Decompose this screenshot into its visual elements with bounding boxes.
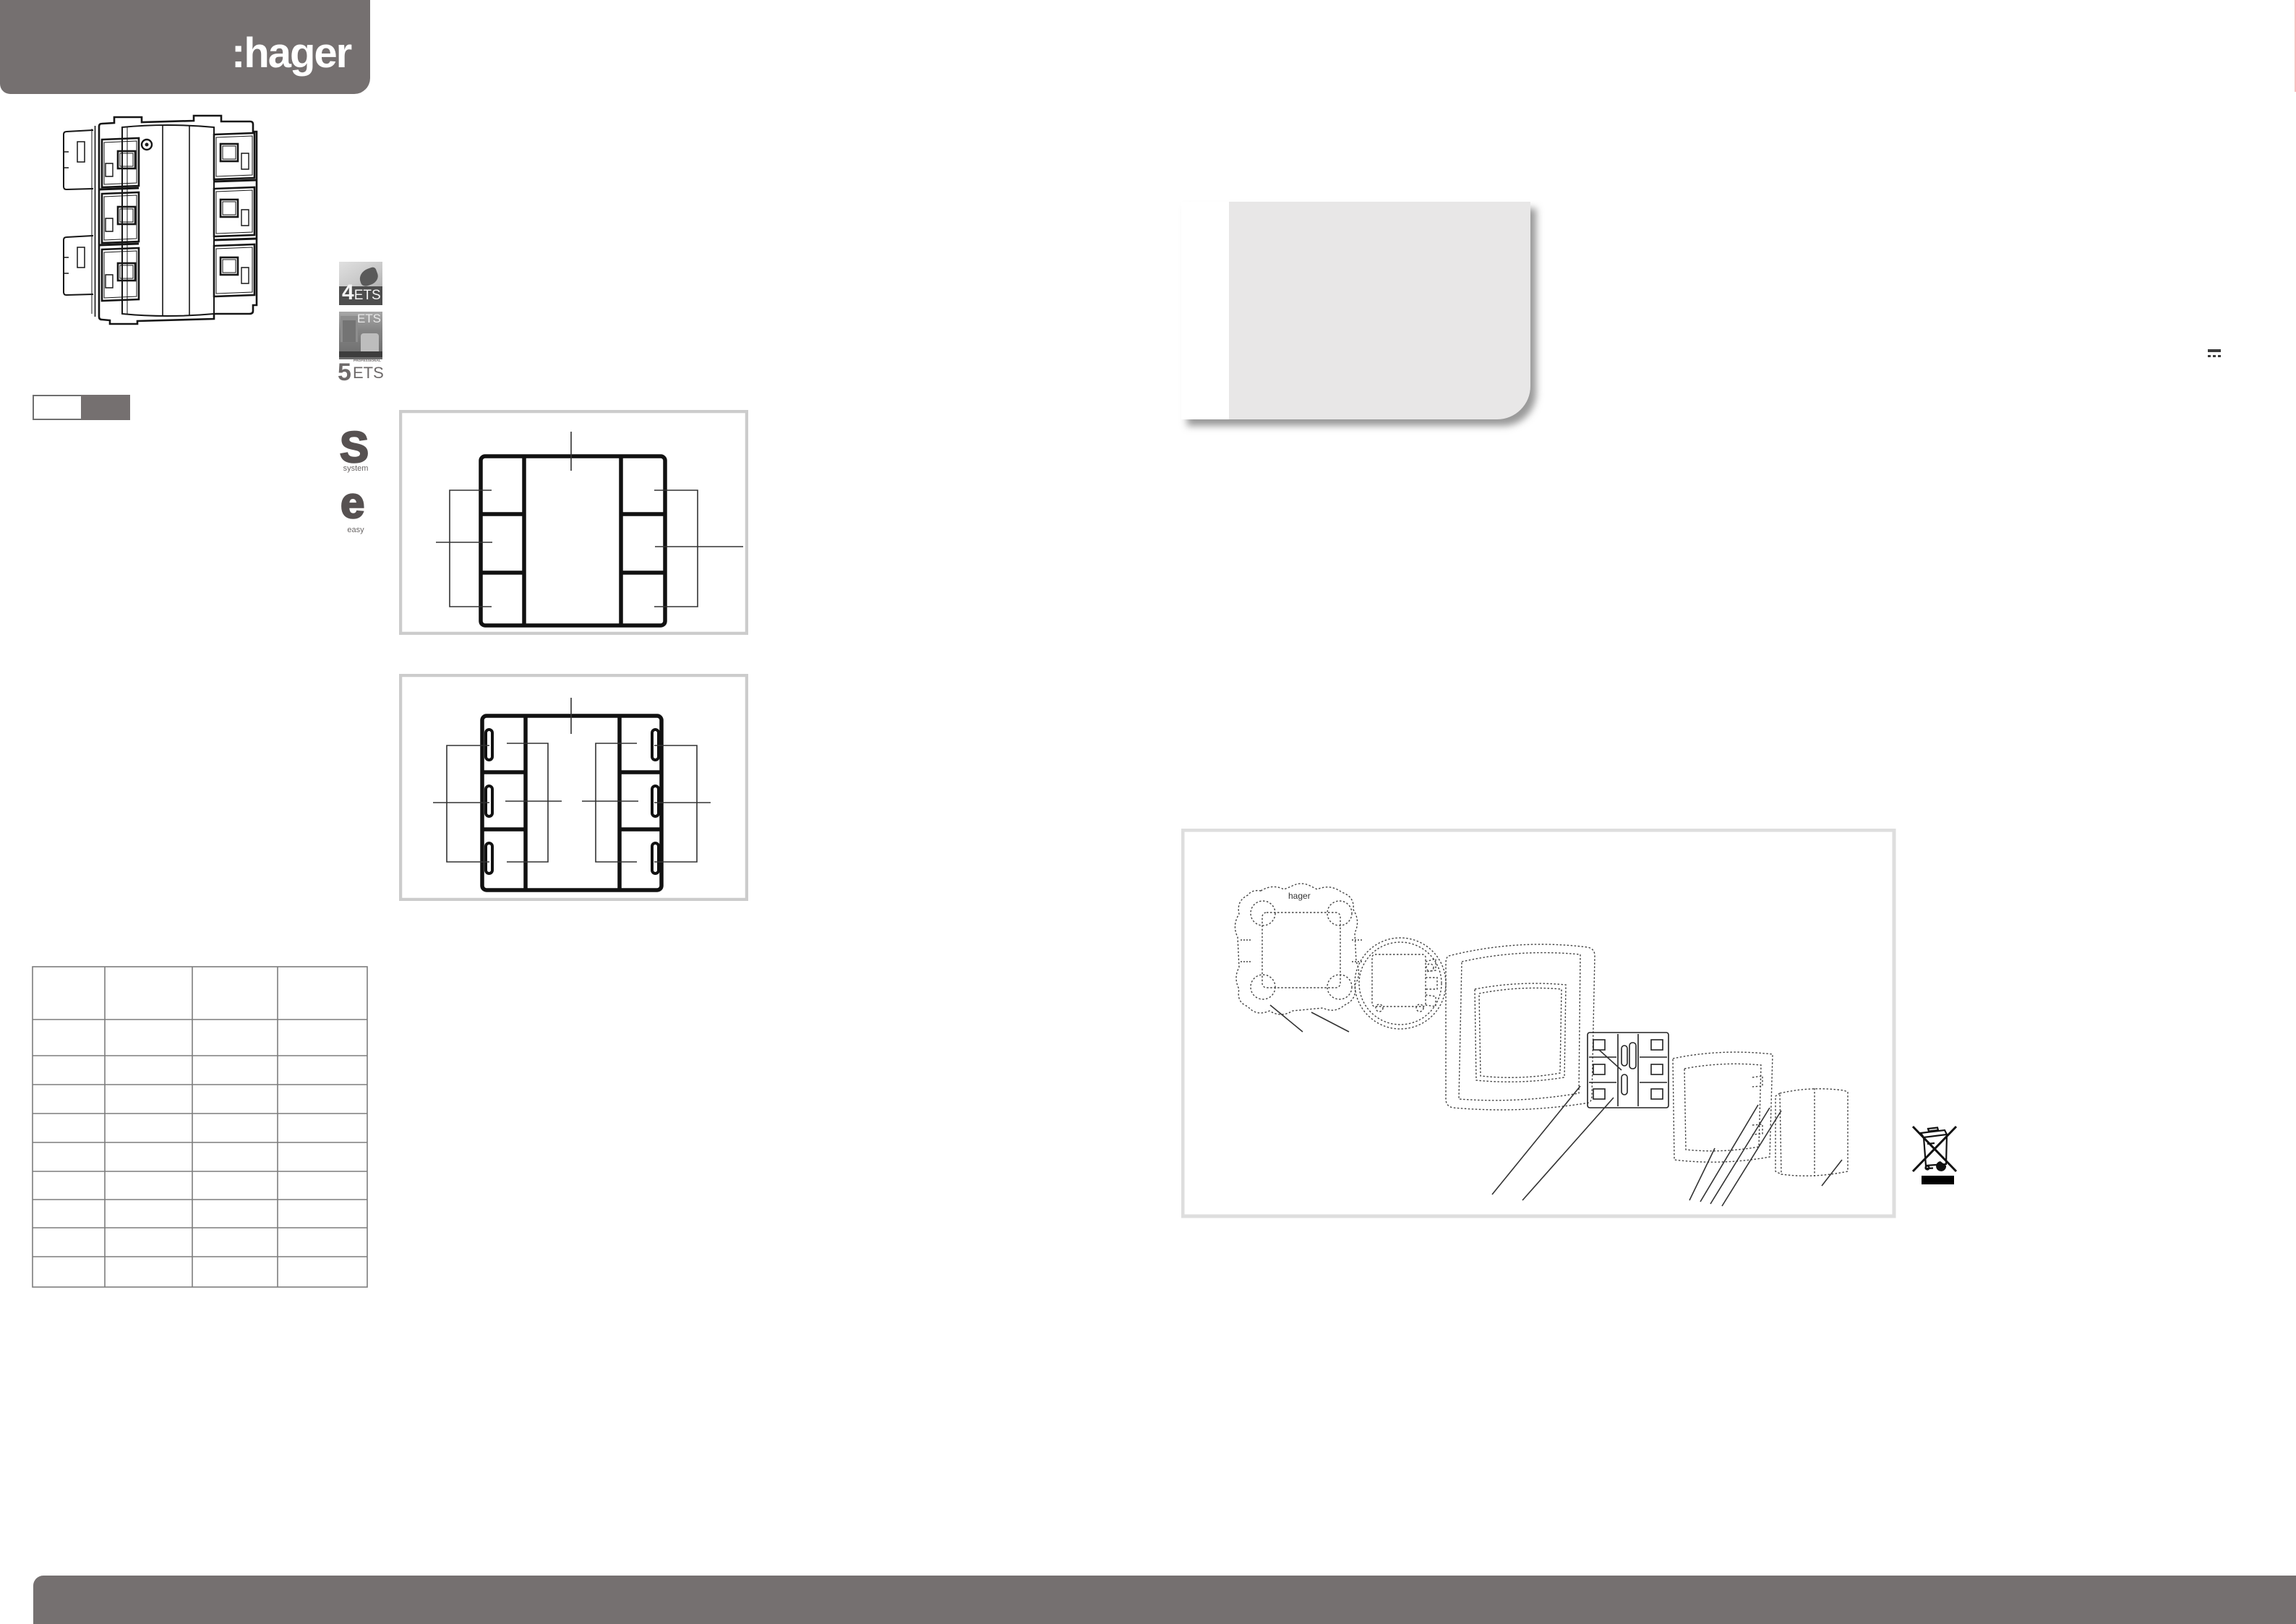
svg-text:hager: hager <box>1288 891 1311 901</box>
